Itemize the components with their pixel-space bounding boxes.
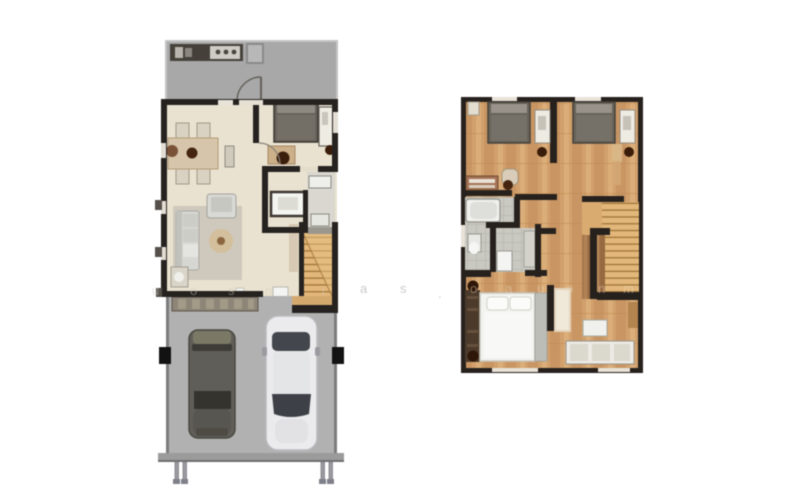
svg-text:a: a: [360, 281, 368, 296]
svg-text:o: o: [566, 281, 573, 296]
svg-text:s: s: [400, 281, 407, 296]
svg-text:o: o: [470, 281, 477, 296]
svg-text:m: m: [623, 281, 634, 296]
svg-text:n: n: [598, 281, 605, 296]
svg-text:.: .: [438, 286, 442, 301]
svg-text:u: u: [537, 281, 544, 296]
svg-text:n: n: [265, 283, 272, 298]
svg-text:s: s: [228, 283, 235, 298]
svg-text:o: o: [190, 283, 197, 298]
svg-text:u: u: [152, 283, 159, 298]
svg-text:a: a: [505, 281, 513, 296]
svg-text:i: i: [322, 283, 325, 298]
